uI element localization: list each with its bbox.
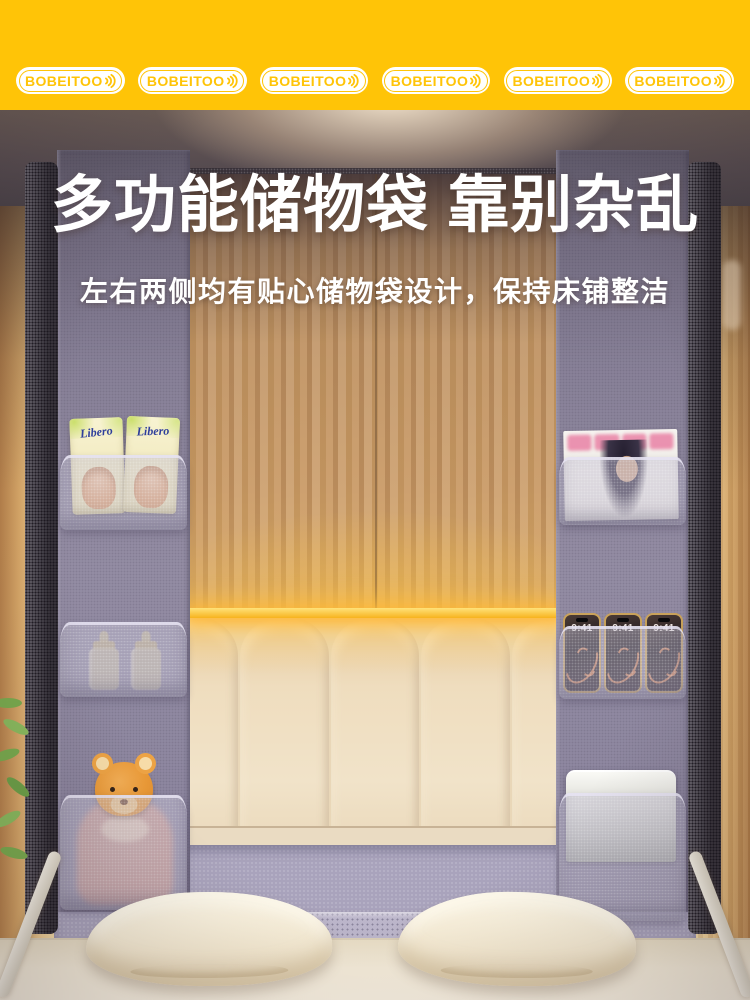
bear-eye [110, 787, 115, 792]
phone-notch [617, 618, 629, 622]
bear-ear [92, 753, 113, 774]
plant-leaf [0, 845, 29, 862]
brand-banner: BOBEITOO BOBEITOO BOBEITOO BOBEITOO BOBE… [0, 0, 750, 110]
sound-waves-icon [347, 72, 359, 90]
headboard-panel [421, 616, 510, 852]
green-plant [0, 698, 54, 908]
diaper-brand-label: Libero [126, 423, 179, 439]
bear-ear [135, 753, 156, 774]
left-storage-panel: Libero Libero [57, 150, 190, 912]
brand-badge: BOBEITOO [382, 67, 491, 94]
page-title: 多功能储物袋 靠别杂乱 [0, 170, 750, 242]
brand-badge-label: BOBEITOO [147, 73, 225, 89]
phone-notch [576, 618, 588, 622]
brand-badge: BOBEITOO [138, 67, 247, 94]
brand-badge-label: BOBEITOO [25, 73, 103, 89]
plant-leaf [0, 808, 23, 831]
brand-badge: BOBEITOO [260, 67, 369, 94]
sound-waves-icon [469, 72, 481, 90]
sound-waves-icon [713, 72, 725, 90]
right-top-pocket [559, 457, 686, 525]
sound-waves-icon [591, 72, 603, 90]
sound-waves-icon [226, 72, 238, 90]
bear-eye [133, 787, 138, 792]
phone-notch [658, 618, 670, 622]
brand-badge: BOBEITOO [625, 67, 734, 94]
plant-leaf [1, 716, 30, 738]
left-middle-pocket [60, 622, 187, 697]
plant-leaf [4, 774, 32, 800]
brand-badge-label: BOBEITOO [391, 73, 469, 89]
right-storage-panel: 9:41 9:41 9:41 [556, 150, 689, 912]
right-middle-pocket [559, 626, 686, 699]
page-subtitle: 左右两侧均有贴心储物袋设计，保持床铺整洁 [0, 270, 750, 310]
left-top-pocket [60, 455, 187, 530]
brand-badge-label: BOBEITOO [513, 73, 591, 89]
brand-badge: BOBEITOO [504, 67, 613, 94]
brand-badge-label: BOBEITOO [269, 73, 347, 89]
sound-waves-icon [104, 72, 116, 90]
left-bottom-pocket [60, 795, 187, 910]
plant-leaf [0, 746, 21, 764]
led-light-strip [186, 608, 564, 618]
product-detail-image: BOBEITOO BOBEITOO BOBEITOO BOBEITOO BOBE… [0, 0, 750, 1000]
plant-leaf [0, 698, 22, 708]
brand-badge-label: BOBEITOO [634, 73, 712, 89]
headboard-panel [240, 616, 329, 852]
brand-badge: BOBEITOO [16, 67, 125, 94]
bed-interior-photo: Libero Libero [0, 110, 750, 1000]
headboard-panel [331, 616, 420, 852]
